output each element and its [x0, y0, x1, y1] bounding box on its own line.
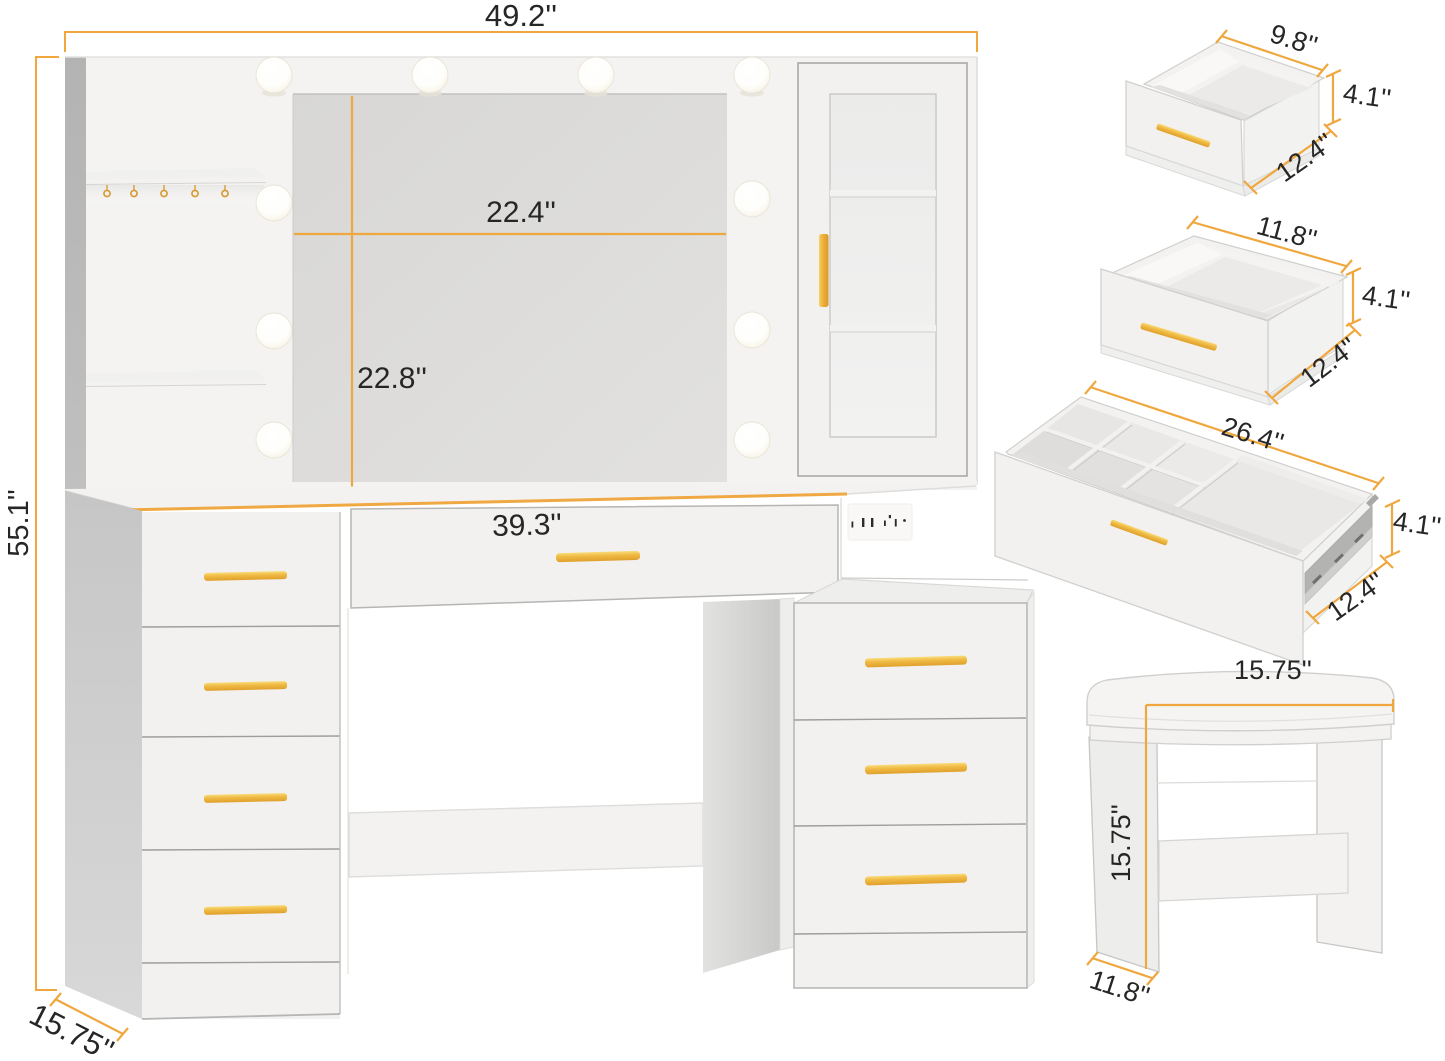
svg-text:15.75'': 15.75'': [1106, 804, 1136, 882]
svg-text:22.8'': 22.8'': [357, 362, 427, 395]
svg-text:55.1'': 55.1'': [3, 489, 35, 557]
svg-text:39.3'': 39.3'': [492, 508, 563, 543]
svg-text:22.4'': 22.4'': [486, 196, 556, 229]
svg-text:15.75'': 15.75'': [1234, 655, 1312, 685]
svg-text:49.2'': 49.2'': [485, 0, 557, 33]
